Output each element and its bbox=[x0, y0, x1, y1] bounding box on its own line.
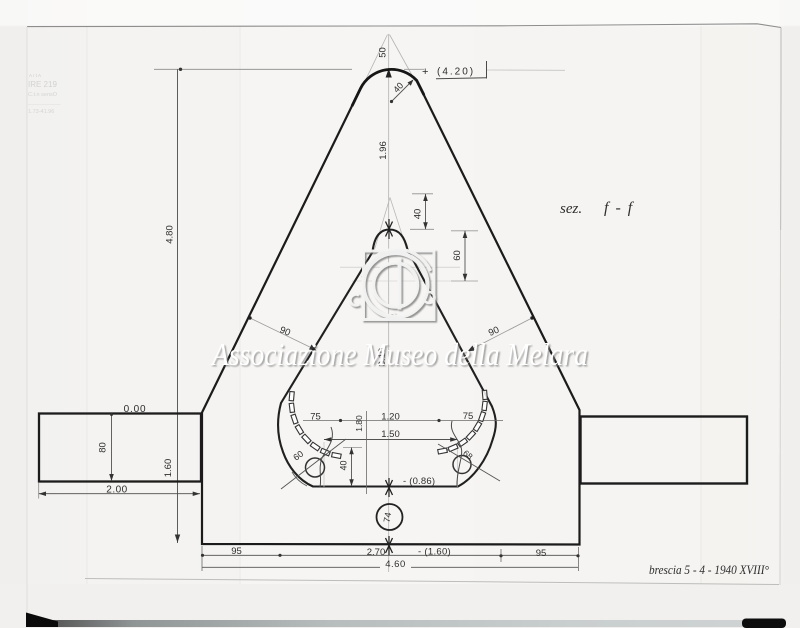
svg-text:IRE 219: IRE 219 bbox=[28, 80, 57, 89]
svg-text:68: 68 bbox=[461, 448, 475, 462]
svg-text:1.73-41.96: 1.73-41.96 bbox=[28, 109, 54, 115]
svg-text:75: 75 bbox=[463, 411, 474, 422]
svg-text:+: + bbox=[422, 66, 428, 78]
svg-text:sez.: sez. bbox=[560, 201, 582, 217]
svg-text:1.20: 1.20 bbox=[381, 412, 400, 423]
svg-text:4.80: 4.80 bbox=[165, 225, 176, 244]
svg-text:1.50: 1.50 bbox=[381, 429, 400, 440]
svg-text:_____________: _____________ bbox=[27, 100, 61, 105]
svg-text:2.00: 2.00 bbox=[106, 485, 127, 496]
svg-text:brescia 5 - 4 - 1940 XVIII°: brescia 5 - 4 - 1940 XVIII° bbox=[649, 563, 769, 577]
svg-text:Associazione Museo della Melar: Associazione Museo della Melara bbox=[210, 336, 588, 372]
svg-text:1.60: 1.60 bbox=[163, 459, 174, 478]
svg-text:4.60: 4.60 bbox=[385, 559, 406, 570]
svg-text:74: 74 bbox=[382, 512, 394, 524]
svg-text:0.00: 0.00 bbox=[124, 404, 147, 415]
svg-text:75: 75 bbox=[310, 412, 321, 423]
svg-text:(4.20): (4.20) bbox=[437, 67, 475, 78]
svg-text:60: 60 bbox=[452, 250, 463, 261]
svg-text:40: 40 bbox=[339, 460, 349, 470]
svg-text:40: 40 bbox=[413, 209, 424, 220]
svg-text:- (0.86): - (0.86) bbox=[403, 476, 435, 487]
svg-text:80: 80 bbox=[98, 442, 109, 453]
svg-text:2.70: 2.70 bbox=[367, 547, 386, 558]
svg-text:- (1.60): - (1.60) bbox=[418, 547, 451, 558]
svg-text:95: 95 bbox=[231, 546, 242, 557]
svg-text:40: 40 bbox=[391, 80, 405, 94]
svg-text:A r t A: A r t A bbox=[29, 73, 41, 78]
svg-text:C.t.n sensO: C.t.n sensO bbox=[28, 92, 58, 98]
svg-text:60: 60 bbox=[291, 449, 305, 463]
svg-text:f - f: f - f bbox=[604, 200, 635, 217]
svg-text:95: 95 bbox=[536, 548, 547, 559]
svg-text:50: 50 bbox=[378, 47, 389, 58]
svg-text:1.96: 1.96 bbox=[378, 141, 389, 160]
svg-text:1.80: 1.80 bbox=[354, 415, 364, 432]
